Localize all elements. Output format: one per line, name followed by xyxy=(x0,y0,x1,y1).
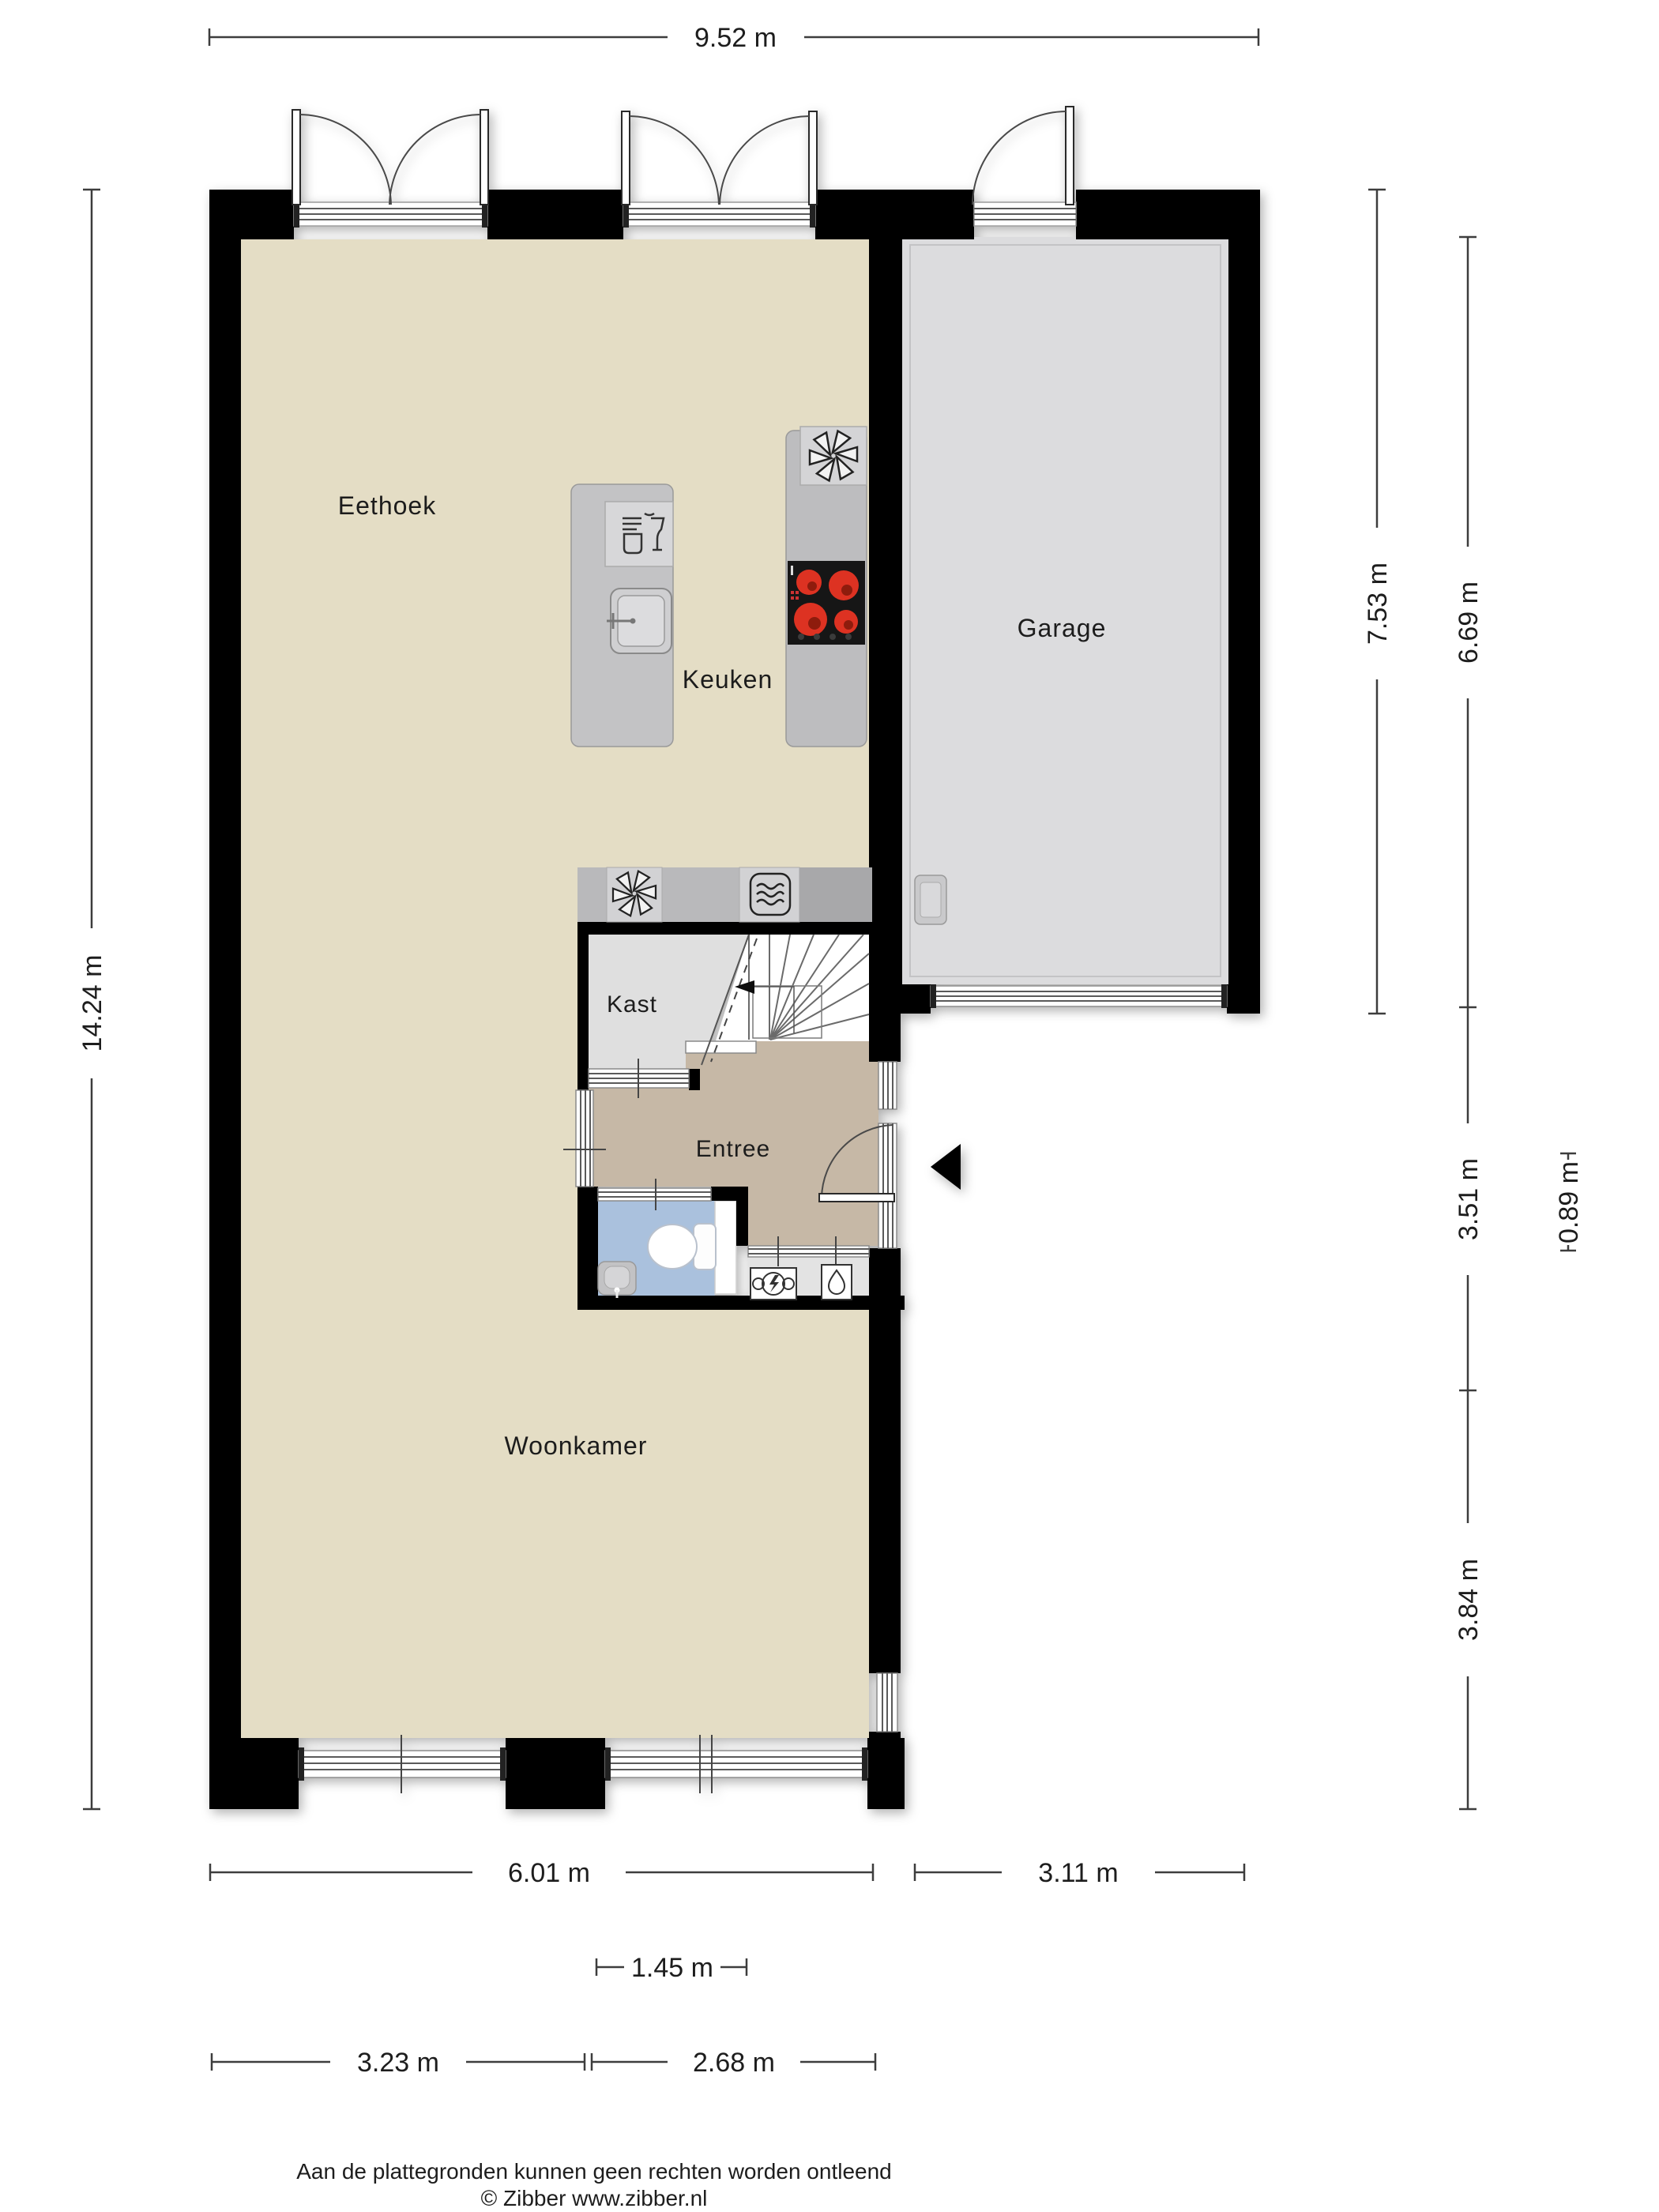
garage-entry-door xyxy=(972,107,1074,205)
double-door-2 xyxy=(622,111,817,205)
right-wall-window xyxy=(877,1673,897,1732)
wall-right-lower xyxy=(869,1310,901,1673)
kitchen-counter-right xyxy=(786,427,867,747)
dim-window-left: 3.23 m xyxy=(357,2048,439,2078)
hand-basin-icon xyxy=(598,1262,636,1298)
kitchen-island xyxy=(571,484,673,747)
wall-kitchen-garage xyxy=(869,237,902,984)
wall-kast-top xyxy=(577,922,872,935)
label-keuken: Keuken xyxy=(683,665,773,694)
label-entree: Entree xyxy=(696,1136,770,1162)
dim-living-width: 6.01 m xyxy=(508,1858,590,1888)
wall-toilet-meter xyxy=(736,1201,748,1246)
toilet-icon xyxy=(648,1224,716,1270)
footer-disclaimer: Aan de plattegronden kunnen geen rechten… xyxy=(296,2159,891,2184)
label-woonkamer: Woonkamer xyxy=(505,1431,648,1460)
dim-garage-outer: 7.53 m xyxy=(1363,562,1393,645)
wall-toilet-top-right xyxy=(711,1187,748,1201)
dim-hall-section: 3.51 m xyxy=(1454,1158,1484,1240)
dim-living-lower: 3.84 m xyxy=(1454,1559,1484,1641)
wall-top-2 xyxy=(487,190,623,239)
door-sill-1 xyxy=(294,201,487,228)
dim-garage-width: 3.11 m xyxy=(1038,1858,1118,1888)
wall-kast-door-end xyxy=(689,1069,700,1090)
entrance-arrow-icon xyxy=(931,1144,961,1190)
wall-kast-left xyxy=(577,935,589,1090)
footer-copyright: © Zibber www.zibber.nl xyxy=(481,2186,708,2210)
electricity-meter-icon xyxy=(750,1268,796,1300)
dim-window-right: 2.68 m xyxy=(693,2048,775,2078)
floorplan-canvas: Eethoek Keuken Garage Kast Entree Woonka… xyxy=(0,0,1659,2212)
wall-garage-right xyxy=(1228,190,1260,1014)
dim-garage-inner: 6.69 m xyxy=(1454,581,1484,664)
wall-garage-bottom-right xyxy=(1227,984,1260,1014)
dim-total-height: 14.24 m xyxy=(77,955,107,1052)
front-door-leaf xyxy=(819,1194,894,1202)
building: Eethoek Keuken Garage Kast Entree Woonka… xyxy=(209,107,1260,1809)
water-meter-icon xyxy=(822,1265,852,1300)
stove-icon xyxy=(788,561,865,645)
bottom-window-right xyxy=(605,1735,867,1793)
wall-toilet-left xyxy=(577,1187,598,1310)
sink-icon xyxy=(607,589,671,653)
wall-bottom-2 xyxy=(506,1738,605,1809)
kitchen-counter-bottom xyxy=(577,867,872,922)
wall-top-3 xyxy=(815,190,974,239)
dim-kitchen-island: 1.45 m xyxy=(631,1953,713,1983)
wall-bottom-1 xyxy=(209,1738,299,1809)
door-sill-2 xyxy=(623,201,815,228)
dim-meter-section: 0.89 m xyxy=(1554,1161,1584,1243)
wall-top-1 xyxy=(209,190,294,239)
label-kast: Kast xyxy=(607,991,657,1018)
wall-bottom-3 xyxy=(867,1738,905,1809)
dim-total-width: 9.52 m xyxy=(694,23,777,53)
garage-door-sill xyxy=(974,202,1076,226)
boiler-icon xyxy=(915,875,946,924)
garage-bottom-window xyxy=(931,984,1227,1008)
wall-left xyxy=(209,190,241,1809)
wall-strip-bottom xyxy=(577,1296,905,1310)
toilet-shaft-panel xyxy=(715,1201,736,1294)
label-garage: Garage xyxy=(1018,614,1107,642)
double-door-1 xyxy=(292,110,488,205)
wall-garage-bottom-left xyxy=(869,984,931,1014)
label-eethoek: Eethoek xyxy=(338,491,436,520)
bottom-window-left xyxy=(299,1735,506,1793)
wall-entree-right-upper xyxy=(869,1014,901,1062)
floor-garage xyxy=(902,237,1228,984)
